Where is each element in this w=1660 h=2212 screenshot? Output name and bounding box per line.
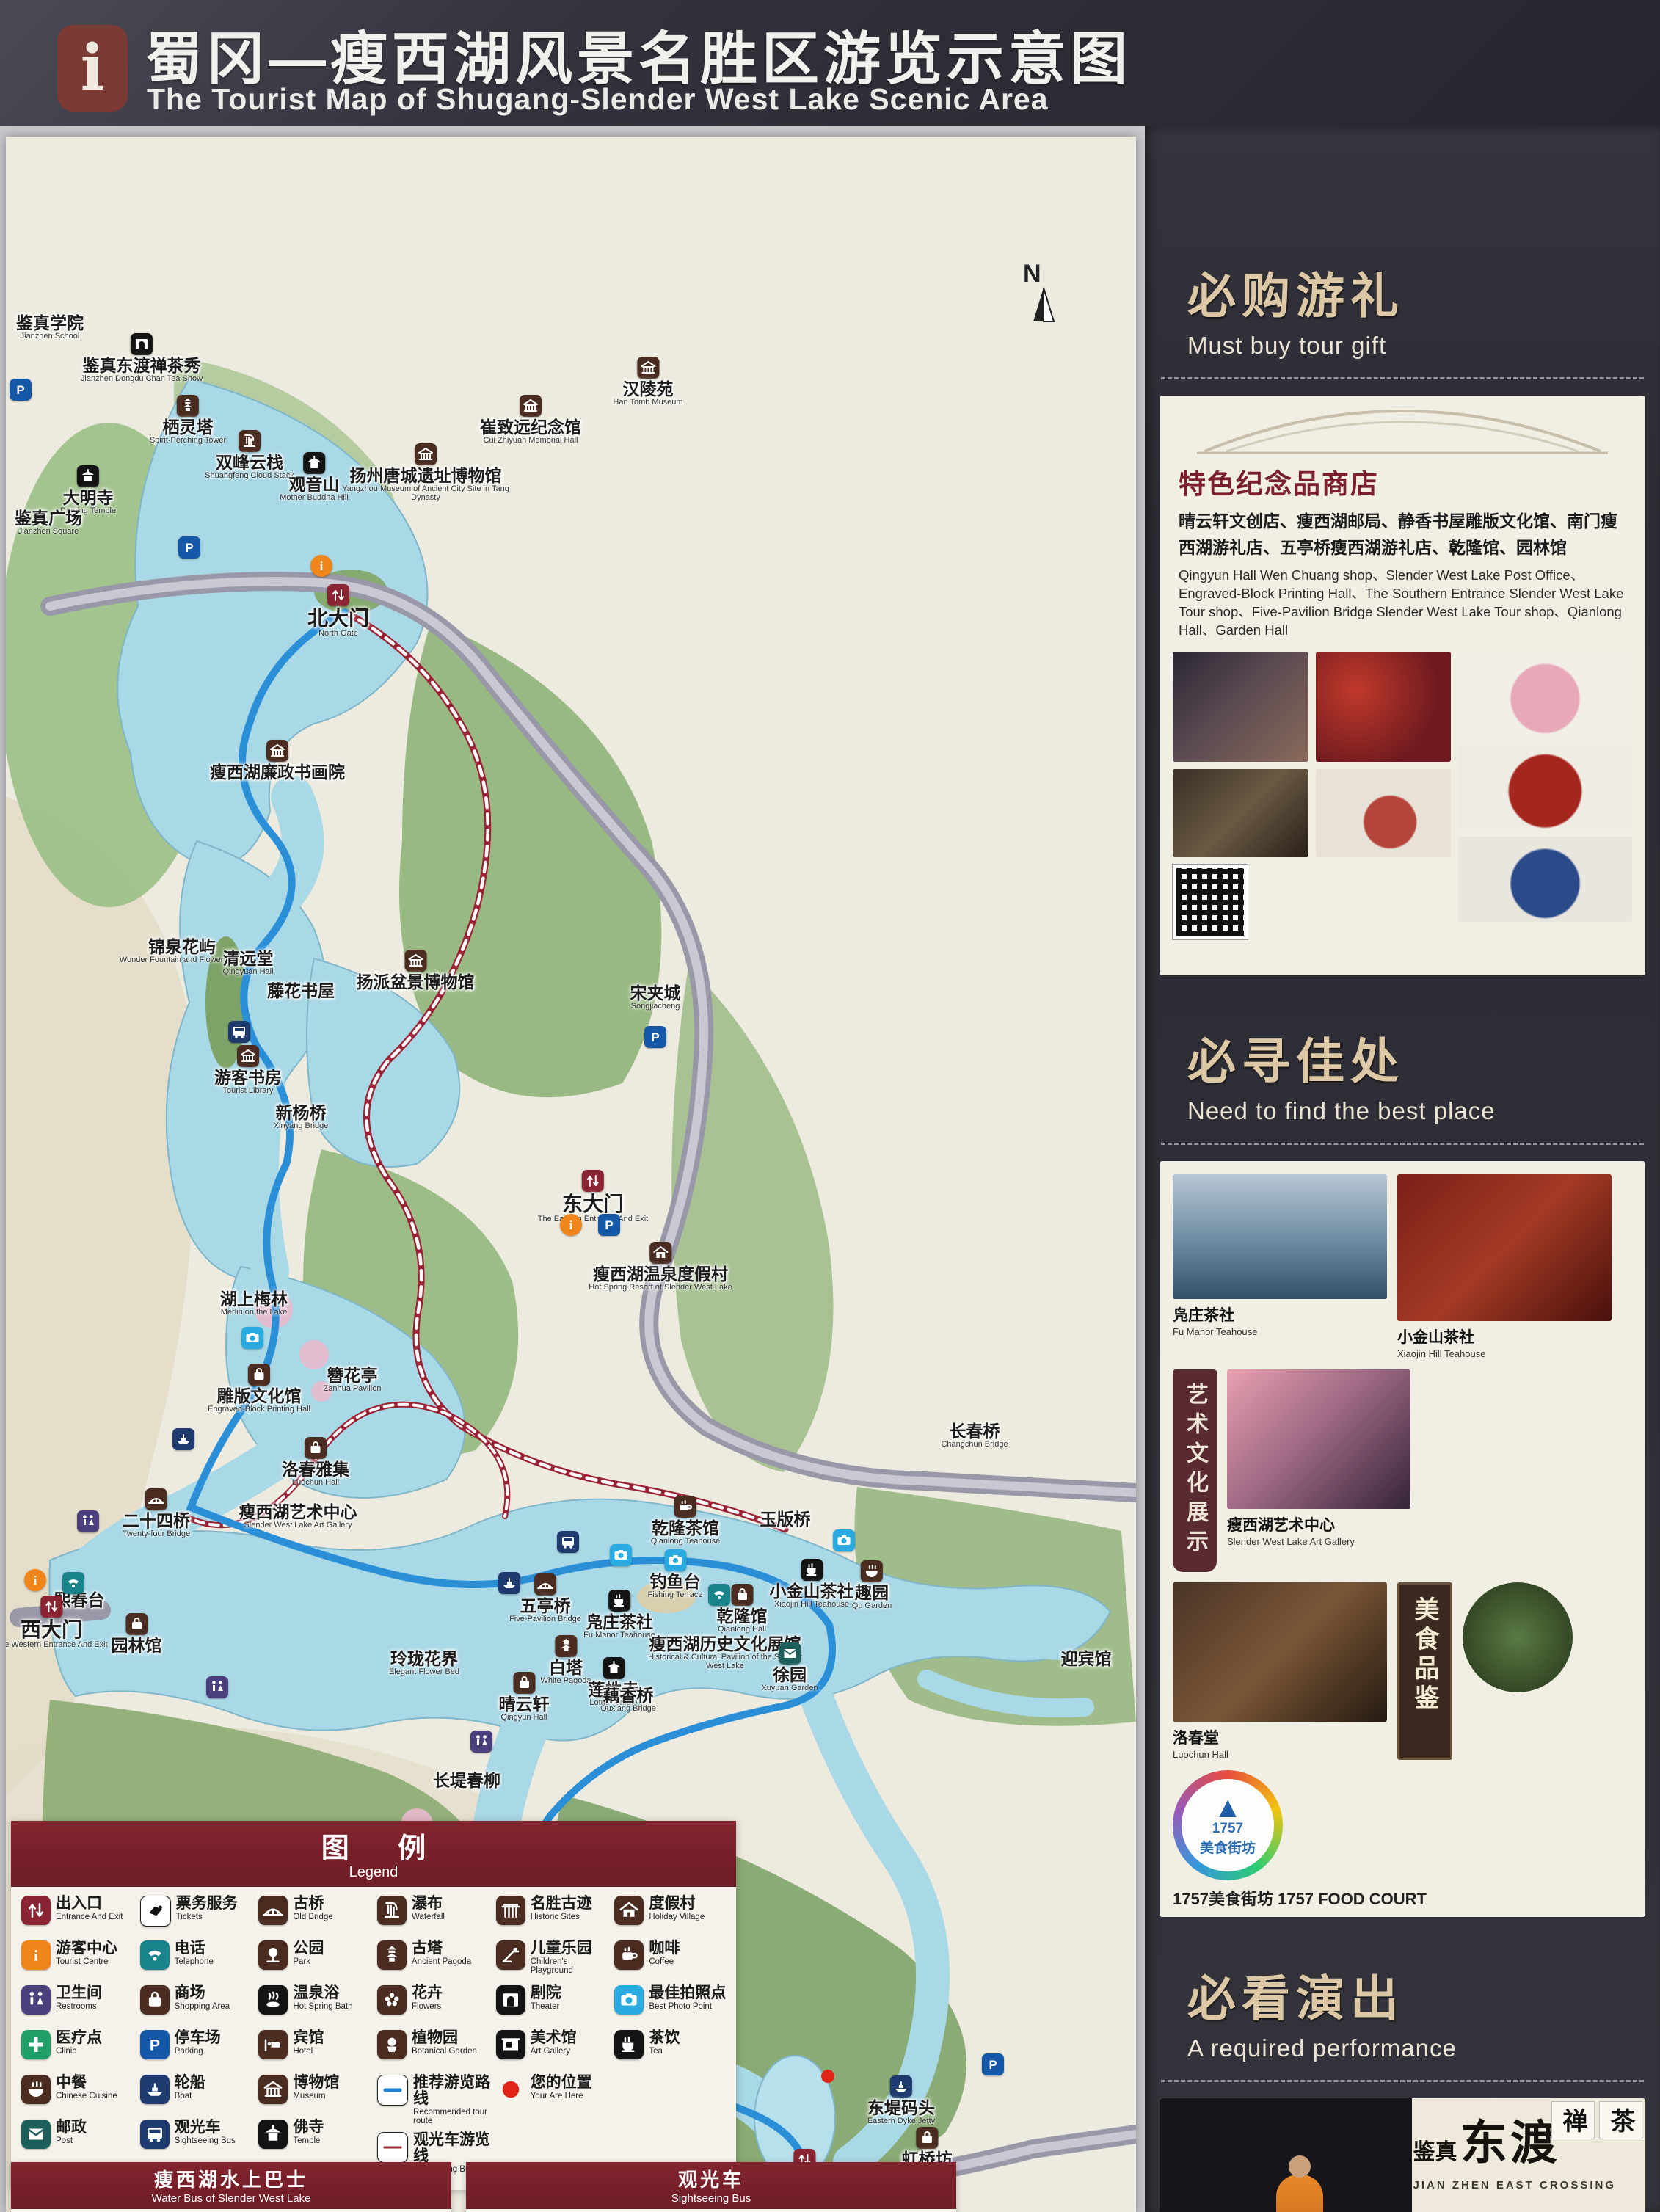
camera2-icon (610, 1544, 632, 1566)
poi-label-zh: 趣园 (852, 1584, 892, 1601)
poi-label-zh: 洛春雅集 (282, 1460, 349, 1478)
svg-text:P: P (16, 383, 24, 397)
map-poi: 游客书房Tourist Library (214, 1045, 282, 1096)
poi-label-zh: 钓鱼台 (648, 1573, 703, 1590)
info-icon: i (21, 1940, 51, 1970)
legend-item: 票务服务Tickets (140, 1896, 255, 1934)
poi-label-zh: 五亭桥 (509, 1597, 581, 1615)
P-icon: P (982, 2053, 1004, 2075)
info-icon: i (24, 1569, 46, 1591)
section-show-title-en: A required performance (1187, 2034, 1660, 2062)
water-bus-box: 瘦西湖水上巴士 Water Bus of Slender West Lake 线… (11, 2162, 451, 2212)
legend-item: 商场Shopping Area (140, 1985, 255, 2023)
photo-luochun-hall: 洛春堂 Luochun Hall (1173, 1582, 1387, 1760)
map-facility-mark (610, 1544, 632, 1568)
poi-label-en: Cui Zhiyuan Memorial Hall (480, 437, 581, 445)
section-show-header: 必看演出 A required performance (1145, 1939, 1660, 2070)
legend-item: 古桥Old Bridge (258, 1896, 373, 1934)
section-show-title: 必看演出 (1187, 1960, 1660, 2030)
legend-item: 度假村Holiday Village (614, 1896, 729, 1934)
legend-item: 咖啡Coffee (614, 1940, 729, 1979)
bag-icon (305, 1437, 327, 1459)
sites-icon (496, 1896, 525, 1925)
map-facility-mark (62, 1572, 84, 1596)
legend: 图 例 Legend 出入口Entrance And Exit i游客中心Tou… (11, 1821, 736, 2190)
svg-text:P: P (150, 2037, 160, 2054)
map-poi: 观音山Mother Buddha Hill (280, 452, 349, 503)
map-poi: 瘦西湖艺术中心Slender West Lake Art Gallery (239, 1503, 357, 1530)
map-poi: 西大门The Western Entrance And Exit (6, 1596, 108, 1650)
poi-label-en: Twenty-four Bridge (123, 1530, 190, 1539)
poi-label-zh: 鉴真学院 (16, 314, 84, 332)
map-poi: 扬派盆景博物馆 (357, 950, 475, 991)
spring-icon (258, 1985, 288, 2015)
bridge-icon (145, 1488, 167, 1510)
map-facility-mark: i (560, 1214, 582, 1237)
info-icon: i (57, 25, 128, 112)
poi-label-en: Qu Garden (852, 1602, 892, 1611)
temple-icon (258, 2120, 288, 2149)
legend-item: 儿童乐园Children's Playground (496, 1940, 611, 1979)
map-poi: 小金山茶社Xiaojin Hill Teahouse (770, 1559, 854, 1609)
gift-shops-en: Qingyun Hall Wen Chuang shop、Slender Wes… (1160, 561, 1645, 640)
map-facility-mark (817, 2065, 839, 2089)
sightseeing-bus-title-en: Sightseeing Bus (466, 2192, 956, 2205)
tree-icon (258, 1940, 288, 1970)
water-bus-lines: 线路: 西门—小金山—南门(单程)共两站包船票价: (11, 2209, 451, 2212)
poi-label-en: Zanhua Pavilion (324, 1385, 382, 1394)
legend-item: 美术馆Art Gallery (496, 2030, 611, 2068)
poi-label-zh: 宋夹城 (630, 984, 681, 1002)
map-poi: 趣园Qu Garden (852, 1560, 892, 1611)
bag-icon (731, 1584, 753, 1606)
gift-card: 特色纪念品商店 晴云轩文创店、瘦西湖邮局、静香书屋雕版文化馆、南门瘦西湖游礼店、… (1160, 396, 1645, 975)
poi-label-zh: 鉴真东渡禅茶秀 (81, 357, 203, 374)
legend-item: 佛寺Temple (258, 2120, 373, 2158)
map-poi: 东堤码头Eastern Dyke Jetty (867, 2075, 935, 2126)
gallery-icon (496, 2030, 525, 2059)
camera2-icon (833, 1529, 855, 1551)
page-subtitle: The Tourist Map of Shugang-Slender West … (147, 82, 1541, 117)
poi-label-zh: 清远堂 (222, 950, 273, 967)
boat-icon (498, 1572, 520, 1594)
poi-label-zh: 扬州唐城遗址博物馆 (341, 467, 510, 484)
map-poi: 迎宾馆 (1061, 1650, 1112, 1667)
poi-label-en: Yangzhou Museum of Ancient City Site in … (341, 485, 510, 502)
poi-label-zh: 玲珑花界 (389, 1650, 459, 1667)
P-icon: P (598, 1214, 620, 1236)
poi-label-zh: 雕版文化馆 (208, 1387, 310, 1405)
museum-icon (266, 740, 288, 762)
photo-art-gallery: 瘦西湖艺术中心 Slender West Lake Art Gallery (1227, 1369, 1410, 1572)
legend-items: 出入口Entrance And Exit i游客中心Tourist Centre… (11, 1887, 736, 2190)
theater-icon (496, 1985, 525, 2015)
poi-label-zh: 东大门 (538, 1193, 648, 1215)
poi-label-zh: 长春桥 (941, 1422, 1008, 1440)
map-facility-mark (172, 1428, 194, 1452)
ticket-icon (140, 1896, 171, 1927)
poi-label-zh: 瘦西湖廉政书画院 (210, 763, 345, 781)
poi-label-zh: 东堤码头 (867, 2099, 935, 2117)
svg-text:i: i (34, 1947, 38, 1965)
wc-icon (470, 1731, 492, 1753)
section-place-title: 必寻佳处 (1187, 1022, 1660, 1093)
tea-icon (801, 1559, 823, 1581)
bed-icon (258, 2030, 288, 2059)
legend-item: 宾馆Hotel (258, 2030, 373, 2068)
map-facility-mark: P (598, 1214, 620, 1237)
poi-label-zh: 簪花亭 (324, 1367, 382, 1384)
poi-label-zh: 大明寺 (60, 489, 116, 506)
poi-label-en: Qianlong Hall (717, 1626, 768, 1634)
tea-icon (608, 1590, 630, 1612)
P-icon: P (10, 379, 32, 401)
legend-header: 图 例 Legend (11, 1821, 736, 1887)
poster-jianzhen: 鉴真 东渡 JIAN ZHEN EAST CROSSING 禅 茶 (1160, 2098, 1645, 2212)
svg-text:P: P (605, 1218, 613, 1232)
poi-label-zh: 鉴真广场 (15, 509, 82, 527)
camera2-icon (241, 1327, 263, 1349)
bag-icon (248, 1364, 270, 1386)
poi-label-en: Hot Spring Resort of Slender West Lake (589, 1284, 732, 1292)
poi-label-en: Tourist Library (214, 1087, 282, 1096)
gift-photo-pot-blue (1458, 837, 1632, 922)
poi-label-en: Xuyuan Garden (761, 1684, 818, 1693)
map-facility-mark: P (982, 2053, 1004, 2077)
leaf-icon (377, 2030, 407, 2059)
map-poi: 凫庄茶社Fu Manor Teahouse (583, 1590, 655, 1640)
legend-item: 瀑布Waterfall (377, 1896, 492, 1934)
legend-item: 卫生间Restrooms (21, 1985, 136, 2023)
map-poi: 鉴真学院Jianzhen School (16, 314, 84, 341)
map-poi: 东大门The Eastern Entrance And Exit (538, 1170, 648, 1224)
museum-icon (415, 443, 437, 465)
map-facility-mark (498, 1572, 520, 1596)
bus-icon (557, 1531, 579, 1553)
wc-icon (21, 1985, 51, 2015)
map-poi: 二十四桥Twenty-four Bridge (123, 1488, 190, 1539)
theater-icon (131, 333, 153, 355)
map-poi: 乾隆茶馆Qianlong Teahouse (651, 1496, 721, 1546)
pagoda-icon (177, 395, 199, 417)
coffee-icon (614, 1940, 644, 1970)
legend-item: 中餐Chinese Cuisine (21, 2075, 136, 2113)
museum-icon (520, 395, 542, 417)
legend-item: 名胜古迹Historic Sites (496, 1896, 611, 1934)
map-panel: N 鉴真学院Jianzhen School 鉴真东渡禅茶秀Jianzhen Do… (6, 137, 1136, 2212)
flower-icon (377, 1985, 407, 2015)
phone-icon (708, 1584, 730, 1606)
envelope-icon (21, 2120, 51, 2149)
youarehere-icon (817, 2065, 839, 2087)
poi-label-en: Five-Pavilion Bridge (509, 1615, 581, 1624)
map-facility-mark (77, 1510, 99, 1534)
gift-photo-pot-red (1458, 744, 1632, 829)
sightseeing-bus-lines: 南线: 南大门→童乐园→白塔→玲珑花界北线: 五亭桥→石壁流淙→锦泉花屿→扬派盆… (466, 2209, 956, 2212)
poi-label-zh: 凫庄茶社 (583, 1613, 655, 1631)
svg-text:P: P (185, 541, 193, 555)
village-icon (614, 1896, 644, 1925)
section-gift-header: 必购游礼 Must buy tour gift (1145, 236, 1660, 367)
poi-label-zh: 观音山 (280, 476, 349, 493)
poi-label-en: Xiaojin Hill Teahouse (770, 1601, 854, 1609)
museum-icon (237, 1045, 259, 1067)
legend-item: 花卉Flowers (377, 1985, 492, 2023)
kids-icon (496, 1940, 525, 1970)
map-poi: 北大门North Gate (307, 584, 369, 639)
bowl-icon (861, 1560, 883, 1582)
village-icon (649, 1242, 671, 1264)
poi-label-zh: 汉陵苑 (613, 380, 682, 398)
legend-title-en: Legend (11, 1864, 736, 1881)
map-poi: 玲珑花界Elegant Flower Bed (389, 1650, 459, 1677)
poi-label-en: Eastern Dyke Jetty (867, 2117, 935, 2126)
legend-item: 邮政Post (21, 2120, 136, 2158)
map-facility-mark (708, 1584, 730, 1607)
compass-north: N (1023, 260, 1041, 288)
phone-icon (140, 1940, 170, 1970)
poi-label-en: Qianlong Teahouse (651, 1538, 721, 1546)
poi-label-zh: 湖上梅林 (220, 1290, 288, 1308)
poi-label-zh: 乾隆茶馆 (651, 1519, 721, 1537)
bridge-icon (534, 1573, 556, 1596)
bag-icon (916, 2127, 938, 2149)
map-poi: 新杨桥Xinyang Bridge (274, 1104, 329, 1131)
poi-label-zh: 瘦西湖温泉度假村 (589, 1265, 732, 1283)
poi-label-en: Songjiacheng (630, 1003, 681, 1011)
poi-label-en: Jianzhen Dongdu Chan Tea Show (81, 375, 203, 384)
sidebar: 必购游礼 Must buy tour gift 特色纪念品商店 晴云轩文创店、瘦… (1145, 126, 1660, 2212)
map-poi: 扬州唐城遗址博物馆Yangzhou Museum of Ancient City… (341, 443, 510, 502)
map-facility-mark (470, 1731, 492, 1754)
poi-label-zh: 晴云轩 (499, 1695, 550, 1713)
map-poi: 晴云轩Qingyun Hall (499, 1672, 550, 1722)
map-poi: 簪花亭Zanhua Pavilion (324, 1367, 382, 1394)
photo-fu-manor: 凫庄茶社 Fu Manor Teahouse (1173, 1174, 1387, 1359)
cross-icon (21, 2030, 51, 2059)
map-facility-mark (228, 1021, 250, 1044)
map-poi: 崔致远纪念馆Cui Zhiyuan Memorial Hall (480, 395, 581, 445)
map-facility-mark (206, 1676, 228, 1700)
poi-label-zh: 长堤春柳 (433, 1772, 500, 1789)
P-icon: P (140, 2030, 170, 2059)
poi-label-en: North Gate (307, 630, 369, 639)
poi-label-zh: 西大门 (6, 1619, 108, 1640)
gift-photo-teaset (1173, 769, 1308, 857)
art-culture-banner: 艺术文化展示 (1173, 1369, 1217, 1572)
water-bus-title: 瘦西湖水上巴士 (154, 2169, 308, 2191)
map-poi: 藕香桥Ouxiang Bridge (600, 1687, 656, 1714)
photo-garden-round (1463, 1582, 1573, 1692)
map-facility-mark: P (178, 536, 200, 560)
map-poi: 玉版桥 (760, 1510, 811, 1528)
pagoda-logo-icon: ▲ (1213, 1794, 1242, 1821)
P-icon: P (178, 536, 200, 559)
gift-photo-pot-pink (1458, 652, 1632, 737)
gate-icon (582, 1170, 604, 1192)
poi-label-en: Jianzhen Square (15, 528, 82, 536)
poi-label-en: Merlin on the Lake (220, 1309, 288, 1317)
boat-icon (140, 2075, 170, 2104)
post2-icon (779, 1642, 801, 1665)
map-facility-mark (557, 1531, 579, 1554)
gift-photo-figurines (1316, 652, 1452, 762)
museum-icon (404, 950, 426, 972)
temple-icon (603, 1657, 625, 1679)
map-poi: 鉴真广场Jianzhen Square (15, 509, 82, 536)
section-gift-title: 必购游礼 (1187, 257, 1660, 327)
monk-figure (1276, 2175, 1323, 2212)
map-poi: 徐园Xuyuan Garden (761, 1642, 818, 1693)
qr-code (1173, 865, 1248, 939)
poi-label-en: Xinyang Bridge (274, 1122, 329, 1131)
bowl-icon (21, 2075, 51, 2104)
gift-shop-title: 特色纪念品商店 (1160, 459, 1645, 501)
sign-header: i 蜀冈—瘦西湖风景名胜区游览示意图 The Tourist Map of Sh… (0, 0, 1660, 126)
svg-text:i: i (34, 1573, 37, 1587)
section-place-header: 必寻佳处 Need to find the best place (1145, 1002, 1660, 1132)
camera2-icon (664, 1549, 686, 1571)
map-facility-mark: i (310, 555, 332, 578)
gate-icon (21, 1896, 51, 1925)
wc-icon (206, 1676, 228, 1698)
legend-item: 最佳拍照点Best Photo Point (614, 1985, 729, 2023)
bag-icon (140, 1985, 170, 2015)
divider (1161, 2080, 1644, 2082)
performance-card: 鉴真 东渡 JIAN ZHEN EAST CROSSING 禅 茶 (1160, 2098, 1645, 2212)
legend-item: 剧院Theater (496, 1985, 611, 2023)
fall-icon (239, 430, 261, 452)
camera2-icon (614, 1985, 644, 2015)
tile-cha: 茶 (1599, 2101, 1642, 2139)
gate-icon (40, 1596, 62, 1618)
map-facility-mark (241, 1327, 263, 1350)
poi-label-en: Qingyuan Hall (222, 968, 273, 977)
poi-label-en: Slender West Lake Art Gallery (239, 1521, 357, 1530)
poi-label-en: Han Tomb Museum (613, 399, 682, 407)
poi-label-zh: 乾隆馆 (717, 1607, 768, 1625)
legend-item: 您的位置Your Are Here (496, 2075, 611, 2113)
bridge-icon (258, 1896, 288, 1925)
phone-icon (62, 1572, 84, 1594)
gift-shops-zh: 晴云轩文创店、瘦西湖邮局、静香书屋雕版文化馆、南门瘦西湖游礼店、五亭桥瘦西湖游礼… (1160, 501, 1645, 561)
poi-label-en: Engraved-Block Printing Hall (208, 1405, 310, 1414)
svg-text:i: i (569, 1218, 573, 1232)
section-gift-title-en: Must buy tour gift (1187, 332, 1660, 360)
logo-1757: ▲ 1757 美食街坊 1757美食街坊 1757 FOOD COURT (1173, 1770, 1427, 1910)
sightseeing-bus-title: 观光车 (678, 2169, 744, 2191)
legend-item: 医疗点Clinic (21, 2030, 136, 2068)
map-poi: 瘦西湖廉政书画院 (210, 740, 345, 781)
legend-item: 观光车Sightseeing Bus (140, 2120, 255, 2158)
poi-label-zh: 藤花书屋 (267, 982, 335, 1000)
food-tasting-sign: 美食品鉴 (1397, 1582, 1452, 1760)
poi-label-zh: 游客书房 (214, 1069, 282, 1086)
map-facility-mark: i (24, 1569, 46, 1593)
map-poi: 鉴真东渡禅茶秀Jianzhen Dongdu Chan Tea Show (81, 333, 203, 384)
gift-photo-cups (1316, 769, 1452, 857)
legend-item: 茶饮Tea (614, 2030, 729, 2068)
poi-label-en: Jianzhen School (16, 332, 84, 341)
divider (1161, 377, 1644, 379)
bridge-lineart (1197, 400, 1608, 459)
tourist-map-sign: { "header": { "info_glyph": "i", "title_… (0, 0, 1660, 2212)
map-poi: 宋夹城Songjiacheng (630, 984, 681, 1011)
legend-item: 古塔Ancient Pagoda (377, 1940, 492, 1979)
info-icon: i (560, 1214, 582, 1236)
map-facility-mark: P (644, 1026, 666, 1049)
P-icon: P (644, 1026, 666, 1048)
info-icon: i (310, 555, 332, 577)
svg-text:P: P (651, 1030, 659, 1044)
poi-label-zh: 藕香桥 (600, 1687, 656, 1704)
map-poi: 藤花书屋 (267, 982, 335, 1000)
poi-label-zh: 二十四桥 (123, 1512, 190, 1529)
teabag-icon (513, 1672, 535, 1694)
tile-chan: 禅 (1551, 2101, 1595, 2139)
wc-icon (77, 1510, 99, 1532)
pagoda-icon (377, 1940, 407, 1970)
bag-icon (125, 1613, 148, 1635)
lineblue-icon (377, 2075, 408, 2106)
legend-item: 博物馆Museum (258, 2075, 373, 2113)
legend-item: 温泉浴Hot Spring Bath (258, 1985, 373, 2023)
youarehere-icon (496, 2075, 525, 2104)
poi-label-en: Mother Buddha Hill (280, 494, 349, 503)
coffee-icon (674, 1496, 696, 1518)
temple-icon (303, 452, 325, 474)
legend-item: 电话Telephone (140, 1940, 255, 1979)
linered-icon (377, 2132, 408, 2163)
water-bus-title-en: Water Bus of Slender West Lake (11, 2192, 451, 2205)
boat-icon (890, 2075, 912, 2098)
poi-label-zh: 园林馆 (112, 1637, 162, 1654)
poi-label-zh: 瘦西湖艺术中心 (239, 1503, 357, 1521)
map-poi: 湖上梅林Merlin on the Lake (220, 1290, 288, 1317)
poi-label-en: Ouxiang Bridge (600, 1705, 656, 1714)
poi-label-en: Elegant Flower Bed (389, 1668, 459, 1677)
poi-label-en: Changchun Bridge (941, 1441, 1008, 1449)
map-poi: 瘦西湖温泉度假村Hot Spring Resort of Slender Wes… (589, 1242, 732, 1292)
map-poi: 长春桥Changchun Bridge (941, 1422, 1008, 1449)
svg-text:P: P (989, 2058, 997, 2072)
poi-label-zh: 徐园 (761, 1666, 818, 1684)
best-place-card: 凫庄茶社 Fu Manor Teahouse 小金山茶社 Xiaojin Hil… (1160, 1161, 1645, 1917)
poi-label-en: Qingyun Hall (499, 1714, 550, 1722)
legend-item: 推荐游览路线Recommended tour route (377, 2075, 492, 2125)
divider (1161, 1143, 1644, 1145)
legend-title: 图 例 (11, 1825, 736, 1866)
legend-item: 出入口Entrance And Exit (21, 1896, 136, 1934)
gift-photos (1160, 640, 1645, 953)
bus-icon (140, 2120, 170, 2149)
map-poi: 长堤春柳 (433, 1772, 500, 1789)
bus-icon (228, 1021, 250, 1043)
legend-item: i游客中心Tourist Centre (21, 1940, 136, 1979)
gate-icon (327, 584, 349, 606)
poi-label-zh: 北大门 (307, 608, 369, 629)
map-poi: 汉陵苑Han Tomb Museum (613, 357, 682, 407)
map-poi: 钓鱼台Fishing Terrace (648, 1549, 703, 1600)
map-facility-mark: P (10, 379, 32, 402)
section-place-title-en: Need to find the best place (1187, 1097, 1660, 1125)
boat-icon (172, 1428, 194, 1450)
poi-label-zh: 扬派盆景博物馆 (357, 973, 475, 991)
legend-item: P停车场Parking (140, 2030, 255, 2068)
legend-item: 植物园Botanical Garden (377, 2030, 492, 2068)
pagoda-icon (555, 1635, 577, 1657)
map-poi: 清远堂Qingyuan Hall (222, 950, 273, 977)
